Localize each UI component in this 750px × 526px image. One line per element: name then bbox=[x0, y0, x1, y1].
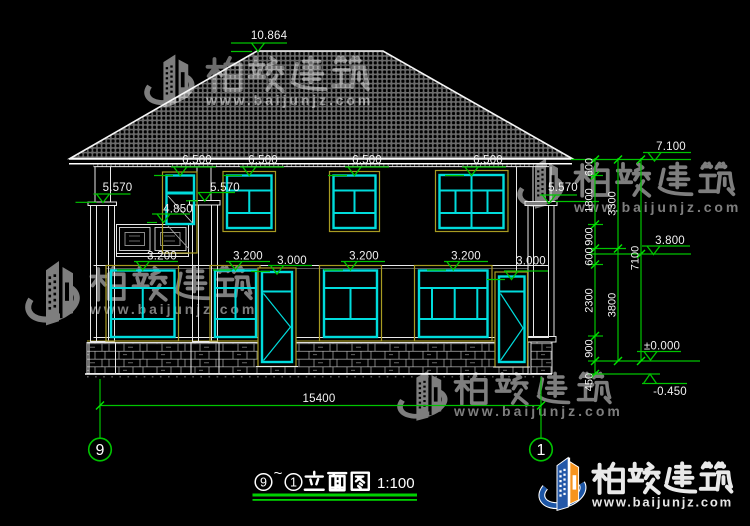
svg-text:10.864: 10.864 bbox=[251, 30, 288, 42]
svg-text:3.000: 3.000 bbox=[516, 256, 546, 268]
svg-text:1: 1 bbox=[290, 476, 297, 490]
svg-text:600: 600 bbox=[584, 247, 596, 265]
svg-text:5.570: 5.570 bbox=[210, 182, 240, 194]
svg-text:900: 900 bbox=[584, 339, 596, 357]
svg-text:6.500: 6.500 bbox=[473, 155, 503, 167]
svg-text:~: ~ bbox=[274, 465, 283, 482]
svg-text:3800: 3800 bbox=[607, 293, 619, 317]
svg-text:1: 1 bbox=[537, 442, 546, 459]
svg-text:3.200: 3.200 bbox=[147, 251, 177, 263]
svg-text:5.570: 5.570 bbox=[548, 182, 578, 194]
svg-text:6.500: 6.500 bbox=[182, 155, 212, 167]
svg-text:3.000: 3.000 bbox=[277, 255, 307, 267]
svg-text:±0.000: ±0.000 bbox=[644, 341, 680, 353]
svg-text:3300: 3300 bbox=[607, 191, 619, 215]
svg-text:1:100: 1:100 bbox=[377, 475, 415, 492]
svg-text:6.500: 6.500 bbox=[352, 155, 382, 167]
svg-text:1800: 1800 bbox=[584, 188, 596, 212]
svg-text:9: 9 bbox=[96, 442, 105, 459]
svg-text:-0.450: -0.450 bbox=[653, 386, 687, 398]
svg-text:450: 450 bbox=[584, 373, 596, 391]
svg-text:7.100: 7.100 bbox=[656, 141, 686, 153]
svg-text:900: 900 bbox=[584, 227, 596, 245]
svg-text:www.baijunjz.com: www.baijunjz.com bbox=[591, 495, 733, 510]
svg-text:2300: 2300 bbox=[584, 288, 596, 312]
svg-text:9: 9 bbox=[260, 476, 267, 490]
svg-text:4.850: 4.850 bbox=[163, 204, 193, 216]
svg-text:6.500: 6.500 bbox=[248, 155, 278, 167]
svg-text:3.200: 3.200 bbox=[349, 251, 379, 263]
svg-text:5.570: 5.570 bbox=[103, 182, 133, 194]
svg-text:3.200: 3.200 bbox=[451, 251, 481, 263]
svg-text:www.baijunjz.com: www.baijunjz.com bbox=[205, 92, 373, 108]
svg-text:3.200: 3.200 bbox=[233, 251, 263, 263]
svg-text:15400: 15400 bbox=[303, 393, 336, 405]
svg-text:600: 600 bbox=[584, 158, 596, 176]
svg-text:7100: 7100 bbox=[630, 246, 642, 270]
svg-text:3.800: 3.800 bbox=[655, 235, 685, 247]
